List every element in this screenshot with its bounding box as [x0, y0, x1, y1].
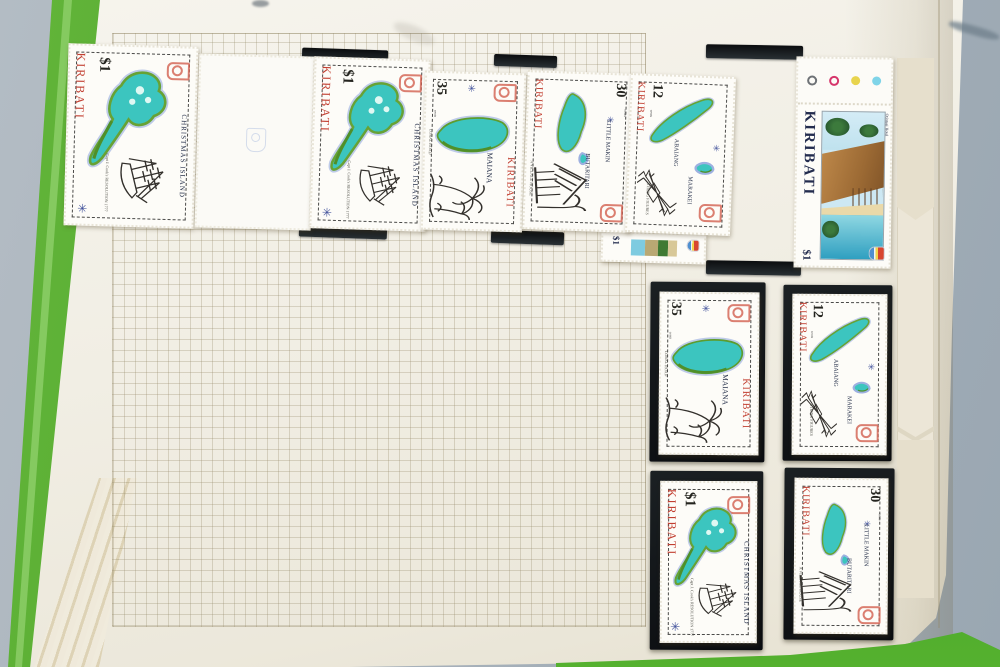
vignette-caption: A VILLAGE HOUSE: [798, 566, 802, 601]
vignette-caption: STRING FIGURES: [809, 404, 813, 436]
denomination-label: 30: [613, 83, 627, 97]
hawid-mount: 35 cents ✳ MAIANA KIRIBATI CORAL ROAD: [649, 282, 765, 463]
coat-of-arms-icon: [870, 247, 884, 259]
island-name-label: CHRISTMAS ISLAND: [410, 123, 420, 207]
stamp-christmas-island-dollar: KIRIBATI $1 Capt J. Cook's RESOLUTION 17…: [660, 481, 758, 643]
hotel-title-label: Otintaai Hotel: [885, 114, 889, 137]
crest-showthrough-icon: [246, 128, 267, 153]
kiribati-crest-icon: [698, 204, 722, 223]
vignette-caption: CORAL ROAD: [428, 129, 433, 155]
compass-star-icon: ✳: [712, 145, 720, 154]
abaiang-atoll-map: [806, 313, 879, 370]
maiana-atoll-map: [668, 324, 751, 388]
island-name-label: MAIANA: [721, 374, 729, 428]
country-label: KIRIBATI: [503, 157, 515, 225]
registration-dot-magenta: [829, 76, 839, 86]
stamp-otintaai-hotel-dollar: KIRIBATI Otintaai Hotel $1: [794, 56, 894, 268]
stamp-christmas-island-dollar: KIRIBATI $1 Capt J. Cook's RESOLUTION 17…: [63, 43, 198, 229]
kiribati-crest-icon: [855, 424, 878, 442]
island-name-label: MAIANA: [485, 152, 494, 205]
vignette-caption: CORAL ROAD: [664, 351, 668, 377]
country-label: KIRIBATI: [800, 486, 811, 565]
hawid-mount: KIRIBATI $1 Capt J. Cook's RESOLUTION 17…: [650, 471, 764, 650]
palm-tree-icon: [822, 220, 838, 238]
hawid-mount: KIRIBATI 12 cents ✳ ABAIANG MARAKEI STRI…: [783, 285, 893, 462]
mount-strip: [706, 44, 803, 60]
village-house-icon: [793, 564, 864, 617]
palm-tree-icon: [826, 118, 850, 136]
registration-dot-yellow: [851, 76, 860, 85]
stamp-design: KIRIBATI Otintaai Hotel $1: [796, 104, 891, 266]
country-label: KIRIBATI: [800, 111, 816, 208]
palm-band: [657, 240, 668, 256]
denomination-unit: cents: [877, 514, 881, 521]
vignette-caption: A VILLAGE HOUSE: [529, 161, 534, 196]
island-name-label: CHRISTMAS ISLAND: [742, 542, 749, 621]
registration-dot-cyan: [872, 76, 881, 85]
compass-star-icon: ✳: [77, 203, 87, 215]
denomination-label: 35: [668, 302, 682, 316]
compass-star-icon: ✳: [702, 305, 710, 315]
compass-star-icon: ✳: [867, 364, 875, 373]
coat-of-arms-icon: [687, 241, 698, 251]
denomination-unit: cents: [623, 110, 627, 117]
ship-caption: Capt J. Cook's RESOLUTION 1777: [104, 153, 110, 211]
page-fold-line: [938, 0, 940, 628]
stamp-abaiang-12c: KIRIBATI 12 cents ✳ ABAIANG MARAKEI STRI…: [792, 294, 888, 455]
interleaf-segment: [897, 58, 934, 220]
compass-star-icon: ✳: [670, 621, 680, 633]
country-label: KIRIBATI: [740, 378, 750, 448]
ship-caption: Capt J. Cook's RESOLUTION 1777: [690, 578, 694, 636]
marakei-islet-map: [691, 155, 719, 179]
mount-strip: [706, 260, 801, 276]
denomination-label: 30: [867, 488, 881, 502]
kiribati-crest-icon: [494, 84, 517, 103]
registration-dot-black: [807, 75, 817, 85]
interleaf-segment: [897, 440, 934, 598]
denomination-label: $1: [800, 250, 811, 261]
stamp-denomination: $1: [611, 236, 620, 245]
abaiang-atoll-map: [643, 93, 726, 152]
stamp-maiana-35c: 35 cents ✳ MAIANA KIRIBATI CORAL ROAD: [421, 71, 526, 233]
kiribati-crest-icon: [728, 304, 751, 322]
stamp-christmas-island-dollar: KIRIBATI $1 Capt J. Cook's RESOLUTION 17…: [309, 56, 430, 232]
sea-band: [631, 239, 646, 255]
stamp-album-photo: $1 KIRIBATI $1 Capt J. Cook's RESOLUTION…: [0, 0, 1000, 667]
island-name-label: LITTLE MAKIN: [863, 524, 869, 562]
compass-star-icon: ✳: [322, 206, 332, 218]
marakei-islet-map: [849, 375, 874, 399]
string-figures-hands-icon: [633, 164, 680, 223]
hotel-scene: [820, 111, 886, 260]
mount-strip: [494, 54, 557, 68]
compass-star-icon: ✳: [467, 85, 476, 95]
coral-palms-icon: [425, 165, 489, 223]
stamp-little-makin-30c: KIRIBATI 30 cents ✳ LITTLE MAKIN BUTARIT…: [793, 478, 888, 635]
island-name-label-2: MARAKEI: [846, 397, 852, 435]
ship-caption: Capt J. Cook's RESOLUTION 1777: [345, 160, 351, 218]
kiribati-crest-icon: [599, 204, 623, 223]
sheet-margin-selvage: [798, 58, 892, 105]
vignette-caption: STRING FIGURES: [645, 183, 650, 215]
beach-band: [667, 240, 677, 256]
stamp-maiana-35c: 35 cents ✳ MAIANA KIRIBATI CORAL ROAD: [658, 292, 759, 456]
kiribati-crest-icon: [857, 607, 880, 625]
maiana-atoll-map: [431, 102, 516, 166]
stamp-strip-partial: $1: [601, 231, 707, 265]
boat-band: [645, 240, 658, 256]
stamp-back-blank: [195, 53, 316, 230]
background-speck: [252, 0, 269, 7]
denomination-label: 35: [433, 81, 447, 95]
hawid-mount: KIRIBATI 30 cents ✳ LITTLE MAKIN BUTARIT…: [783, 468, 894, 641]
stamp-little-makin-30c: KIRIBATI 30 cents ✳ LITTLE MAKIN BUTARIT…: [522, 70, 635, 233]
mount-strip: [491, 230, 564, 246]
coral-palms-icon: [660, 388, 726, 447]
string-figures-hands-icon: [799, 385, 839, 443]
interleaf-strip: [897, 58, 934, 598]
stamp-abaiang-12c: KIRIBATI 12 cents ✳ ABAIANG MARAKEI STRI…: [625, 73, 736, 236]
